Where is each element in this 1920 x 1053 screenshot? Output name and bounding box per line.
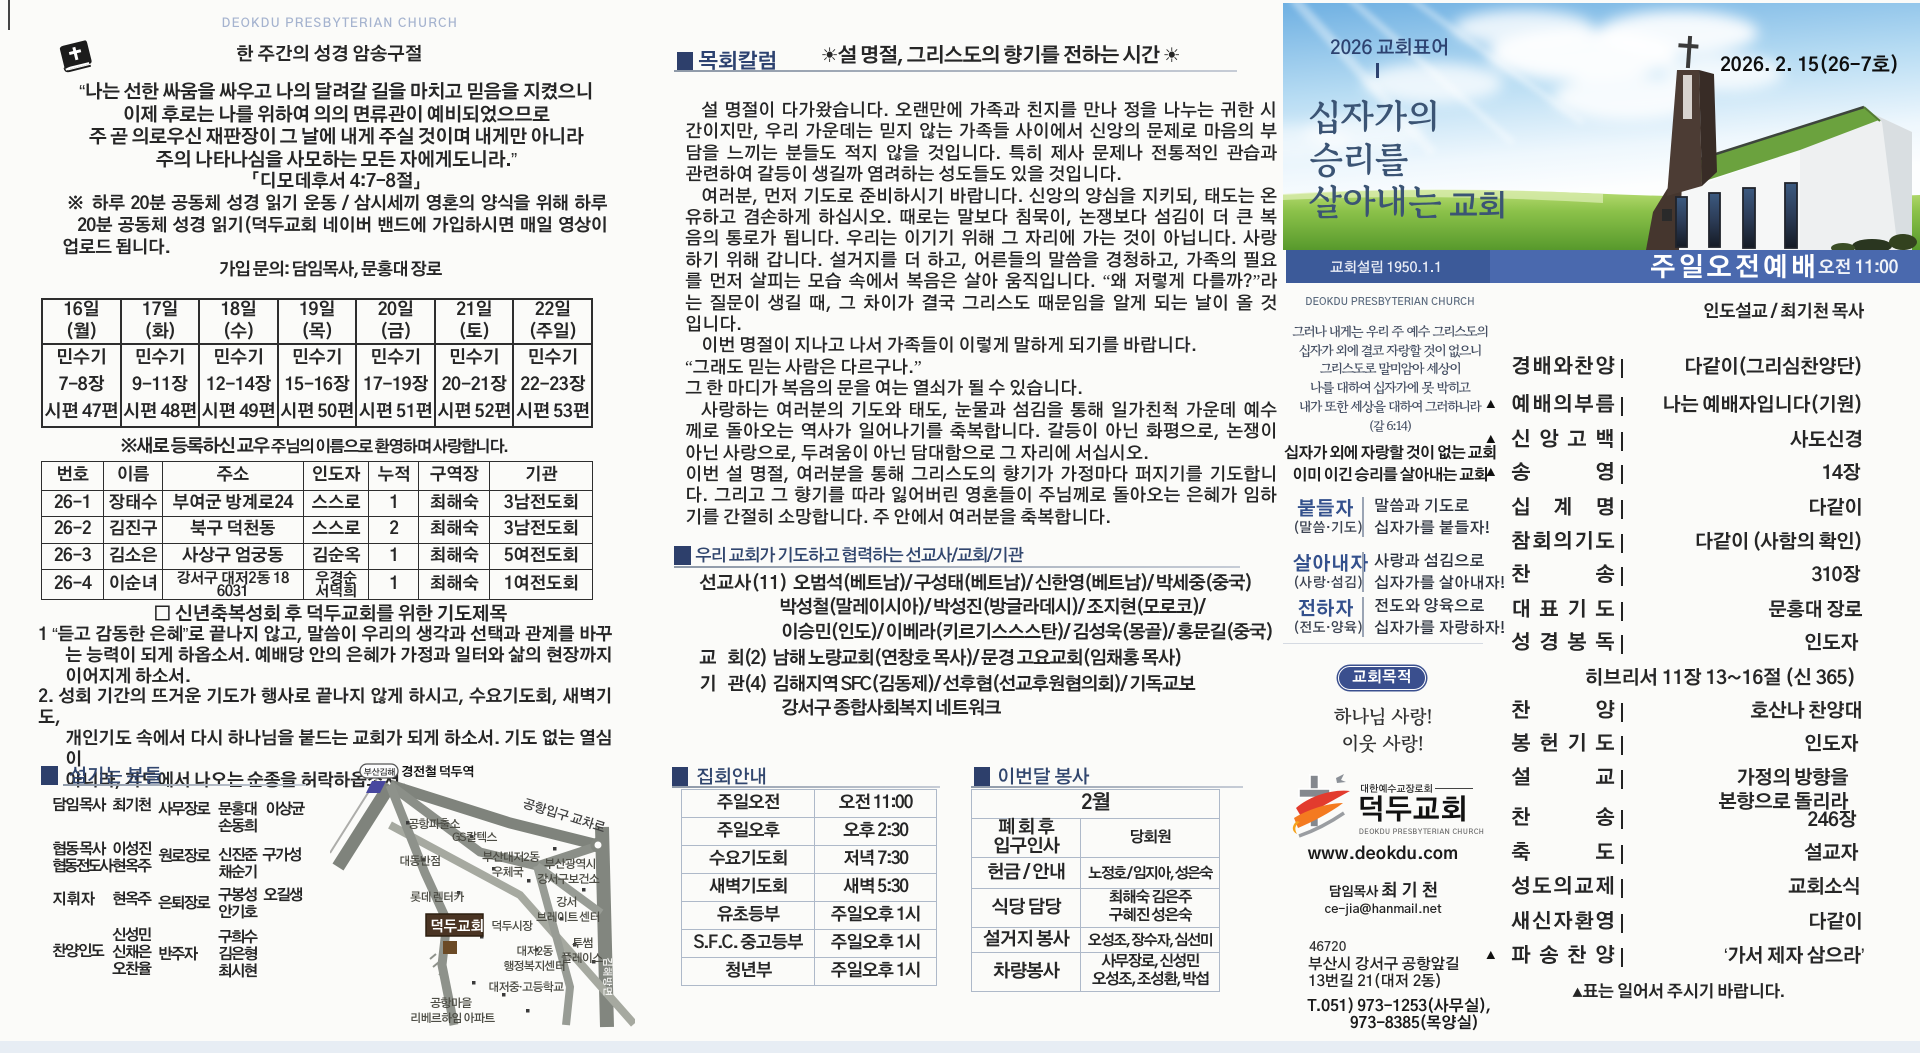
- svg-text:투썸: 투썸: [572, 937, 593, 950]
- svg-text:대저2동: 대저2동: [516, 945, 553, 958]
- svg-text:리베르하임 아파트: 리베르하임 아파트: [410, 1012, 495, 1025]
- svg-text:공항마을: 공항마을: [430, 997, 472, 1010]
- svg-text:플레이스: 플레이스: [561, 952, 603, 965]
- svg-text:덕두교회: 덕두교회: [430, 919, 484, 934]
- svg-text:우체국: 우체국: [492, 866, 524, 879]
- svg-text:롯데 렌터카: 롯데 렌터카: [410, 891, 464, 904]
- svg-text:강서: 강서: [556, 896, 577, 909]
- svg-text:강서구보건소: 강서구보건소: [537, 873, 600, 886]
- svg-text:경전철 덕두역: 경전철 덕두역: [401, 765, 474, 779]
- svg-text:부산김해: 부산김해: [364, 767, 396, 777]
- svg-text:브레이트 센터: 브레이트 센터: [536, 911, 600, 924]
- svg-text:대동반점: 대동반점: [399, 855, 440, 868]
- svg-text:대저중·고등학교: 대저중·고등학교: [488, 981, 564, 994]
- svg-text:덕두시장: 덕두시장: [491, 920, 533, 933]
- svg-text:행정복지센터: 행정복지센터: [503, 960, 566, 973]
- svg-text:부산광역시: 부산광역시: [544, 858, 596, 871]
- svg-text:부산대저2동: 부산대저2동: [482, 851, 540, 864]
- svg-text:공항파출소: 공항파출소: [408, 818, 460, 831]
- svg-text:김해방면: 김해방면: [601, 957, 613, 996]
- svg-text:GS칼텍스: GS칼텍스: [452, 831, 497, 844]
